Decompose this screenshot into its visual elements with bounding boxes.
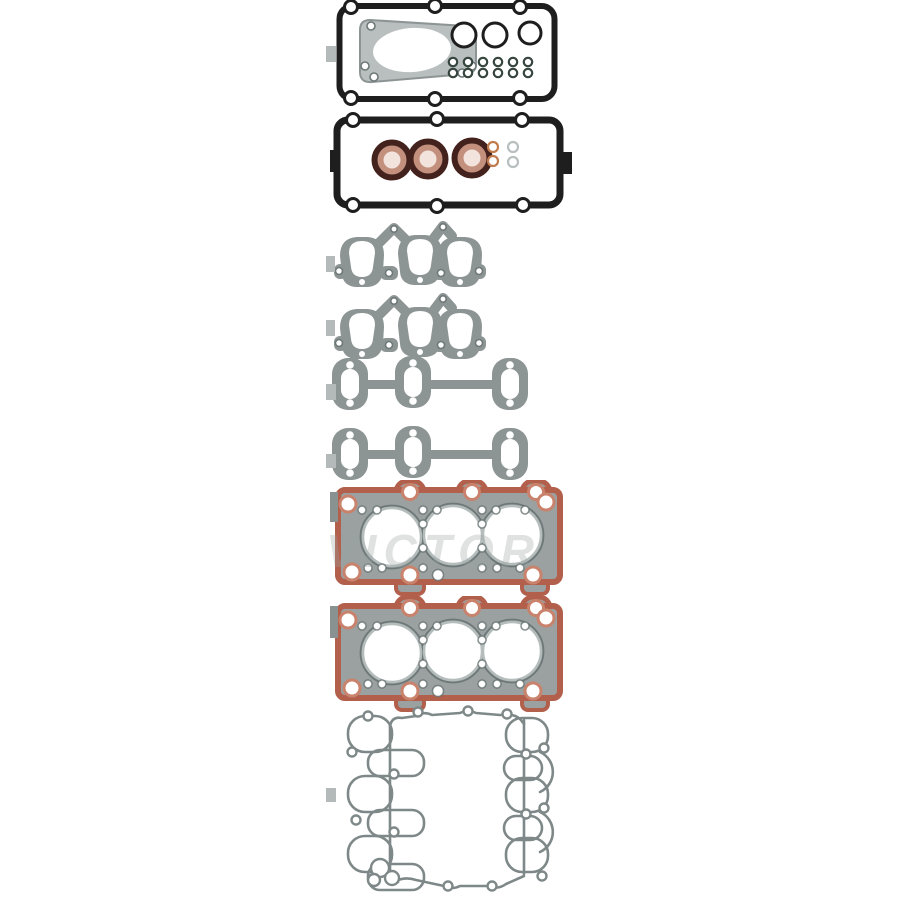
manifold-flange-gasket-2 — [328, 424, 552, 488]
cylinder-bores — [361, 620, 544, 685]
camshaft-seals — [375, 141, 490, 178]
manifold-flange-gasket-1 — [328, 354, 552, 418]
edge-tab — [326, 384, 336, 400]
victor-watermark: VICTOR — [326, 524, 656, 578]
edge-tab — [330, 492, 338, 522]
edge-tab — [326, 454, 336, 468]
exhaust-manifold-gasket-1 — [334, 220, 486, 294]
cylinder-head-gasket-2 — [332, 596, 568, 714]
valve-cover-gasket-lower — [330, 110, 574, 218]
valve-cover-gasket-upper — [334, 0, 560, 108]
cam-cap-hole — [519, 22, 541, 44]
edge-tab — [326, 256, 335, 272]
gasket-set-product-photo: VICTOR — [0, 0, 900, 900]
cam-cap-hole — [483, 23, 507, 47]
edge-tab — [326, 46, 336, 62]
edge-tab — [330, 606, 338, 638]
edge-tab — [326, 320, 335, 336]
edge-tab — [326, 788, 336, 802]
intake-manifold-gasket — [328, 704, 576, 896]
cam-cap-hole — [452, 23, 476, 47]
